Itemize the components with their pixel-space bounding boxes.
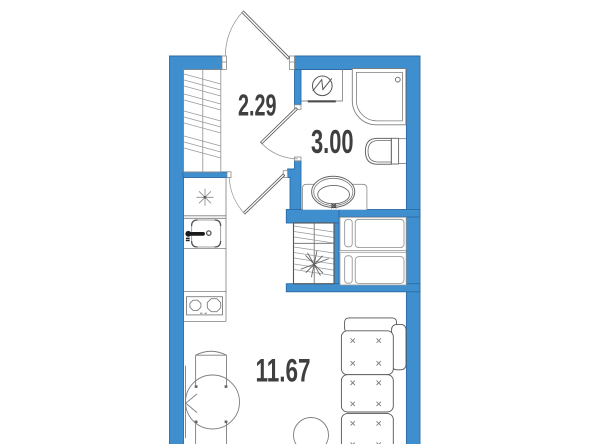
svg-text:3.00: 3.00 <box>311 123 354 160</box>
svg-text:11.67: 11.67 <box>256 353 311 389</box>
svg-text:2.29: 2.29 <box>238 89 277 123</box>
